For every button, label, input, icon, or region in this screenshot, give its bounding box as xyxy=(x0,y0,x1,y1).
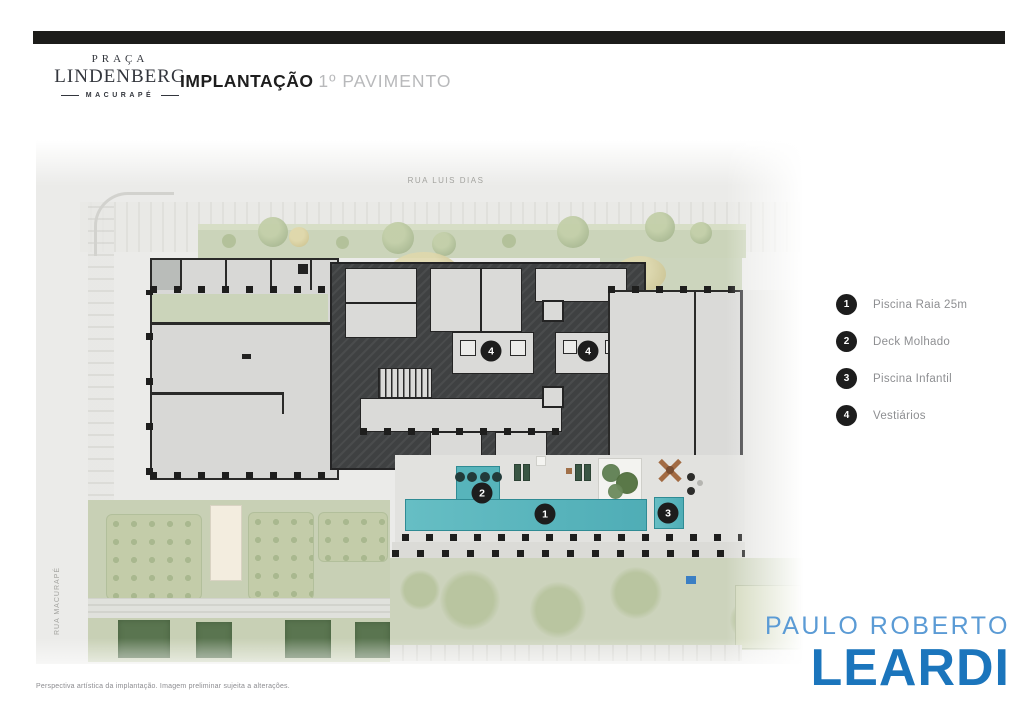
legend-label: Piscina Infantil xyxy=(873,373,952,385)
garden-bed xyxy=(318,512,388,562)
column-row xyxy=(402,534,742,541)
lounger xyxy=(584,464,591,481)
legend-row: 3 Piscina Infantil xyxy=(836,368,1006,389)
garden-bed xyxy=(106,514,202,600)
wall xyxy=(345,302,417,304)
wall-block xyxy=(242,354,251,359)
realtor-logo-top: PAULO ROBERTO xyxy=(765,614,1010,639)
legend-label: Vestiários xyxy=(873,410,926,422)
brand-line-3-text: MACURAPÉ xyxy=(86,92,154,99)
page-title-bold: IMPLANTAÇÃO xyxy=(180,71,314,91)
left-wing-garden xyxy=(152,294,328,322)
top-bar xyxy=(33,31,1005,44)
page-title: IMPLANTAÇÃO 1º PAVIMENTO xyxy=(180,71,452,92)
legend: 1 Piscina Raia 25m 2 Deck Molhado 3 Pisc… xyxy=(836,294,1006,442)
lounger xyxy=(523,464,530,481)
tree-icon xyxy=(289,227,309,247)
realtor-logo: PAULO ROBERTO LEARDI xyxy=(765,614,1010,694)
tree-icon xyxy=(557,216,589,248)
plan-marker-deck-molhado: 2 xyxy=(472,483,493,504)
dash-right xyxy=(161,95,179,96)
legend-row: 1 Piscina Raia 25m xyxy=(836,294,1006,315)
street-corner-curve xyxy=(94,192,174,256)
water-jet-icon xyxy=(455,472,465,482)
locker-block xyxy=(563,340,577,354)
building-right-wing xyxy=(608,290,742,465)
wall xyxy=(282,392,284,414)
plan-marker-piscina-raia: 1 xyxy=(535,504,556,525)
legend-number-badge: 2 xyxy=(836,331,857,352)
table-icon xyxy=(697,480,703,486)
brand-line-3: MACURAPÉ xyxy=(50,92,190,99)
wall xyxy=(694,290,696,465)
core-corridor xyxy=(360,398,562,432)
plan-marker-vestiarios: 4 xyxy=(481,341,502,362)
legend-row: 4 Vestiários xyxy=(836,405,1006,426)
brand-logo: PRAÇA LINDENBERG MACURAPÉ xyxy=(50,53,190,99)
wall-block xyxy=(298,264,308,274)
table-icon xyxy=(687,487,695,495)
realtor-logo-bottom: LEARDI xyxy=(765,642,1010,694)
garden-path xyxy=(210,505,242,581)
lawn-tree xyxy=(610,567,662,619)
lawn-tree xyxy=(530,582,586,638)
site-plan: RUA LUIS DIAS RUA MACURAPÉ xyxy=(36,140,814,664)
legend-number-badge: 4 xyxy=(836,405,857,426)
side-table xyxy=(566,468,572,474)
tree-icon xyxy=(690,222,712,244)
column-row xyxy=(150,472,339,479)
elevator-core xyxy=(542,386,564,408)
bush-icon xyxy=(336,236,349,249)
locker-block xyxy=(510,340,526,356)
page-title-light: 1º PAVIMENTO xyxy=(318,71,451,91)
dash-left xyxy=(61,95,79,96)
plan-marker-vestiarios: 4 xyxy=(578,341,599,362)
street-label-top: RUA LUIS DIAS xyxy=(366,176,526,185)
map-pin-icon xyxy=(686,576,696,584)
column-row xyxy=(360,428,562,435)
plan-marker-piscina-infantil: 3 xyxy=(658,503,679,524)
legend-number-badge: 1 xyxy=(836,294,857,315)
wall xyxy=(152,322,337,325)
tree-icon xyxy=(258,217,288,247)
lounger xyxy=(514,464,521,481)
street-label-left: RUA MACURAPÉ xyxy=(54,525,61,635)
planter xyxy=(536,456,546,466)
tree-icon xyxy=(382,222,414,254)
palm-icon xyxy=(608,484,623,499)
pool-25m xyxy=(405,499,647,531)
bush-icon xyxy=(502,234,516,248)
legend-label: Deck Molhado xyxy=(873,336,950,348)
legend-number-badge: 3 xyxy=(836,368,857,389)
water-jet-icon xyxy=(492,472,502,482)
column-row xyxy=(392,550,745,557)
stairs xyxy=(378,368,432,398)
wall xyxy=(152,392,284,395)
column-row xyxy=(150,286,339,293)
lawn-tree xyxy=(440,570,500,630)
water-jet-icon xyxy=(467,472,477,482)
lounger xyxy=(575,464,582,481)
tree-icon xyxy=(645,212,675,242)
water-jet-icon xyxy=(480,472,490,482)
elevator-core xyxy=(542,300,564,322)
plan-right-fade xyxy=(726,140,814,664)
lawn-tree xyxy=(400,570,440,610)
garden-bed xyxy=(248,512,314,600)
wall xyxy=(480,268,482,332)
table-icon xyxy=(687,473,695,481)
brochure-page: PRAÇA LINDENBERG MACURAPÉ IMPLANTAÇÃO 1º… xyxy=(0,0,1024,719)
brand-line-1: PRAÇA xyxy=(50,53,190,65)
disclaimer-text: Perspectiva artística da implantação. Im… xyxy=(36,683,290,690)
column-row xyxy=(608,286,742,293)
column-col xyxy=(146,290,153,475)
legend-label: Piscina Raia 25m xyxy=(873,299,967,311)
plan-bottom-fade xyxy=(36,638,814,664)
bush-icon xyxy=(222,234,236,248)
core-room xyxy=(430,268,522,332)
garden-walkway xyxy=(88,598,390,618)
umbrella-center xyxy=(666,466,674,474)
locker-block xyxy=(460,340,476,356)
legend-row: 2 Deck Molhado xyxy=(836,331,1006,352)
brand-line-2: LINDENBERG xyxy=(50,66,190,88)
